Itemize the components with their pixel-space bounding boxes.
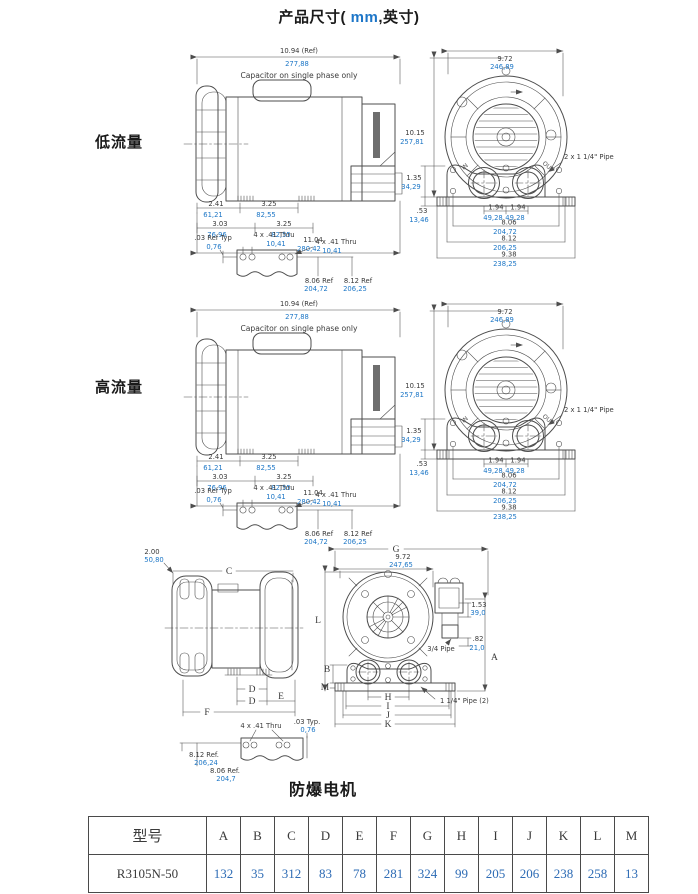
side-dim-a-in: 2.41 xyxy=(208,453,223,461)
side-dim-a-mm: 61,21 xyxy=(203,464,222,472)
dimension-table: 型号 A B C D E F G H I J K L M R3105N-50 1… xyxy=(88,816,649,893)
front-basew-in: 9.38 xyxy=(501,251,516,259)
front-boltw2-in: 8.12 xyxy=(501,488,516,496)
front-width-in: 9.72 xyxy=(497,55,512,63)
front-port1-mm: 49,28 xyxy=(483,214,502,222)
letter-foot-ref2-in: 8.06 Ref. xyxy=(210,767,240,775)
table-cell-m: 13 xyxy=(615,855,649,893)
letter-foot-typ-in: .03 Typ. xyxy=(294,718,321,726)
side-overall-dim-mm: 277,88 xyxy=(285,60,309,68)
side-dim-d-in: 3.25 xyxy=(276,220,291,228)
front-width-mm: 246,89 xyxy=(490,63,514,71)
front-boltw2-in: 8.12 xyxy=(501,235,516,243)
table-cell-g: 324 xyxy=(411,855,445,893)
page-title-prefix: 产品尺寸( xyxy=(278,9,346,26)
datasheet-page: 产品尺寸( mm,英寸) 低流量 高流量 xyxy=(0,0,698,894)
table-cell-e: 78 xyxy=(343,855,377,893)
letter-front-width-mm: 247,65 xyxy=(389,561,413,569)
letter-foot-ref1-in: 8.12 Ref. xyxy=(189,751,219,759)
foot-holes2-mm: 10,41 xyxy=(322,500,341,508)
side-overall-dim-mm: 277,88 xyxy=(285,313,309,321)
letter-side-dim-in: 2.00 xyxy=(144,548,159,556)
side-dim-b-in: 3.25 xyxy=(261,200,276,208)
table-header-k: K xyxy=(547,817,581,855)
front-base-h2-mm: 13,46 xyxy=(409,469,428,477)
high-flow-drawings: 10.94 (Ref) 277,88 Capacitor on single p… xyxy=(85,293,695,545)
table-cell-i: 205 xyxy=(479,855,513,893)
foot-ref-typ-mm: 0,76 xyxy=(206,243,221,251)
side-dim-b-mm: 82,55 xyxy=(256,464,275,472)
side-overall-dim-in: 10.94 (Ref) xyxy=(280,300,318,308)
front-view-linework xyxy=(421,51,575,258)
table-header-l: L xyxy=(581,817,615,855)
letter-baseplate-serrations xyxy=(338,683,452,691)
table-header-m: M xyxy=(615,817,649,855)
side-overall-dim-in: 10.94 (Ref) xyxy=(280,47,318,55)
table-cell-model: R3105N-50 xyxy=(89,855,207,893)
page-title: 产品尺寸( mm,英寸) xyxy=(0,6,698,27)
fan-grille-spokes xyxy=(367,596,409,638)
front-base-h1-mm: 34,29 xyxy=(401,183,420,191)
front-port1-in: 1.94 xyxy=(488,204,503,212)
letter-foot-typ-mm: 0,76 xyxy=(300,726,315,734)
table-header-f: F xyxy=(377,817,411,855)
letter-pipe-small-label: 3/4 Pipe xyxy=(427,645,454,653)
front-base-h2-in: .53 xyxy=(417,460,428,468)
table-cell-b: 35 xyxy=(241,855,275,893)
table-header-h: H xyxy=(445,817,479,855)
table-header-c: C xyxy=(275,817,309,855)
letter-foot-holes-in: 4 x .41 Thru xyxy=(240,722,281,730)
explosion-proof-motor-label: 防爆电机 xyxy=(289,776,357,800)
foot-holes2-mm: 10,41 xyxy=(322,247,341,255)
side-dim-b-mm: 82,55 xyxy=(256,211,275,219)
letter-dim-l: L xyxy=(315,616,321,626)
foot-ref2-in: 8.12 Ref xyxy=(344,530,373,538)
letter-offset-mm: 21,0 xyxy=(469,644,484,652)
table-header-j: J xyxy=(513,817,547,855)
letter-foot-ref2-mm: 204,7 xyxy=(216,775,235,783)
foot-ref1-in: 8.06 Ref xyxy=(305,277,334,285)
letter-box-in: 1.53 xyxy=(471,601,486,609)
front-base-h1-in: 1.35 xyxy=(406,174,421,182)
letter-dim-d1: D xyxy=(249,685,256,695)
side-dim-d-in: 3.25 xyxy=(276,473,291,481)
letter-dim-c: C xyxy=(226,567,232,577)
foot-holes1-in: 4 x .41 Thru xyxy=(253,484,294,492)
side-dim-c-in: 3.03 xyxy=(212,473,227,481)
letter-front-width-in: 9.72 xyxy=(395,553,410,561)
side-dim-c-in: 3.03 xyxy=(212,220,227,228)
foot-holes1-in: 4 x .41 Thru xyxy=(253,231,294,239)
foot-ref-typ-in: .03 Ref Typ xyxy=(194,487,232,495)
front-basew-in: 9.38 xyxy=(501,504,516,512)
foot-holes2-in: 4 x .41 Thru xyxy=(315,238,356,246)
front-width-mm: 246,89 xyxy=(490,316,514,324)
front-basew-mm: 238,25 xyxy=(493,260,517,268)
grille-louvers xyxy=(471,361,541,420)
table-header-row: 型号 A B C D E F G H I J K L M xyxy=(89,817,649,855)
table-cell-d: 83 xyxy=(309,855,343,893)
foot-holes1-mm: 10,41 xyxy=(266,240,285,248)
table-cell-l: 258 xyxy=(581,855,615,893)
page-title-mm-unit: mm xyxy=(346,9,378,26)
letter-dim-k: K xyxy=(385,720,392,730)
front-base-h1-in: 1.35 xyxy=(406,427,421,435)
explosion-proof-drawings: 2.00 50,80 C D D E F xyxy=(85,540,695,790)
letter-foot-ref1-mm: 206,24 xyxy=(194,759,218,767)
foot-holes2-in: 4 x .41 Thru xyxy=(315,491,356,499)
letter-dim-d2: D xyxy=(249,697,256,707)
front-base-h2-mm: 13,46 xyxy=(409,216,428,224)
front-width-in: 9.72 xyxy=(497,308,512,316)
table-header-e: E xyxy=(343,817,377,855)
table-cell-j: 206 xyxy=(513,855,547,893)
foot-ref1-mm: 204,72 xyxy=(304,285,328,293)
front-port1-in: 1.94 xyxy=(488,457,503,465)
table-cell-k: 238 xyxy=(547,855,581,893)
grille-louvers xyxy=(471,108,541,167)
capacitor-note: Capacitor on single phase only xyxy=(240,324,358,333)
front-pipes-label: 2 x 1 1/4" Pipe xyxy=(564,153,614,161)
page-title-suffix: ,英寸) xyxy=(378,9,419,26)
side-dim-b-in: 3.25 xyxy=(261,453,276,461)
letter-dim-e: E xyxy=(278,692,284,702)
front-basew-mm: 238,25 xyxy=(493,513,517,521)
front-port2-in: 1.94 xyxy=(510,457,525,465)
foot-ref-typ-mm: 0,76 xyxy=(206,496,221,504)
low-flow-drawings: 10.94 (Ref) 277,88 Capacitor on single p… xyxy=(85,40,695,292)
side-dim-a-in: 2.41 xyxy=(208,200,223,208)
foot-ref2-in: 8.12 Ref xyxy=(344,277,373,285)
letter-foot-serrations xyxy=(228,669,269,675)
front-base-h2-in: .53 xyxy=(417,207,428,215)
front-height-in: 10.15 xyxy=(405,382,424,390)
capacitor-note: Capacitor on single phase only xyxy=(240,71,358,80)
table-cell-f: 281 xyxy=(377,855,411,893)
front-boltw1-in: 8.06 xyxy=(501,472,516,480)
table-header-g: G xyxy=(411,817,445,855)
table-data-row: R3105N-50 132 35 312 83 78 281 324 99 20… xyxy=(89,855,649,893)
front-view-linework xyxy=(421,304,575,511)
letter-offset-in: .82 xyxy=(473,635,484,643)
blower-drawing-row: 10.94 (Ref) 277,88 Capacitor on single p… xyxy=(184,300,614,546)
front-port1-mm: 49,28 xyxy=(483,467,502,475)
letter-box-mm: 39,0 xyxy=(470,609,485,617)
letter-side-dim-mm: 50,80 xyxy=(144,556,163,564)
table-header-d: D xyxy=(309,817,343,855)
side-dim-a-mm: 61,21 xyxy=(203,211,222,219)
table-cell-h: 99 xyxy=(445,855,479,893)
front-height-mm: 257,81 xyxy=(400,138,424,146)
foot-ref1-in: 8.06 Ref xyxy=(305,530,334,538)
table-cell-c: 312 xyxy=(275,855,309,893)
foot-ref-typ-in: .03 Ref Typ xyxy=(194,234,232,242)
foot-ref2-mm: 206,25 xyxy=(343,285,367,293)
letter-pipes-label: 1 1/4" Pipe (2) xyxy=(440,697,489,705)
blower-drawing-row: 10.94 (Ref) 277,88 Capacitor on single p… xyxy=(184,47,614,293)
letter-dim-f: F xyxy=(204,708,209,718)
table-header-model: 型号 xyxy=(89,817,207,855)
letter-dim-m: M xyxy=(321,683,330,693)
front-pipes-label: 2 x 1 1/4" Pipe xyxy=(564,406,614,414)
table-cell-a: 132 xyxy=(207,855,241,893)
front-height-in: 10.15 xyxy=(405,129,424,137)
foot-holes1-mm: 10,41 xyxy=(266,493,285,501)
front-base-h1-mm: 34,29 xyxy=(401,436,420,444)
front-height-mm: 257,81 xyxy=(400,391,424,399)
table-header-a: A xyxy=(207,817,241,855)
table-header-i: I xyxy=(479,817,513,855)
letter-dim-b: B xyxy=(324,665,330,675)
front-port2-in: 1.94 xyxy=(510,204,525,212)
front-boltw1-in: 8.06 xyxy=(501,219,516,227)
table-header-b: B xyxy=(241,817,275,855)
letter-dim-a: A xyxy=(491,653,498,663)
